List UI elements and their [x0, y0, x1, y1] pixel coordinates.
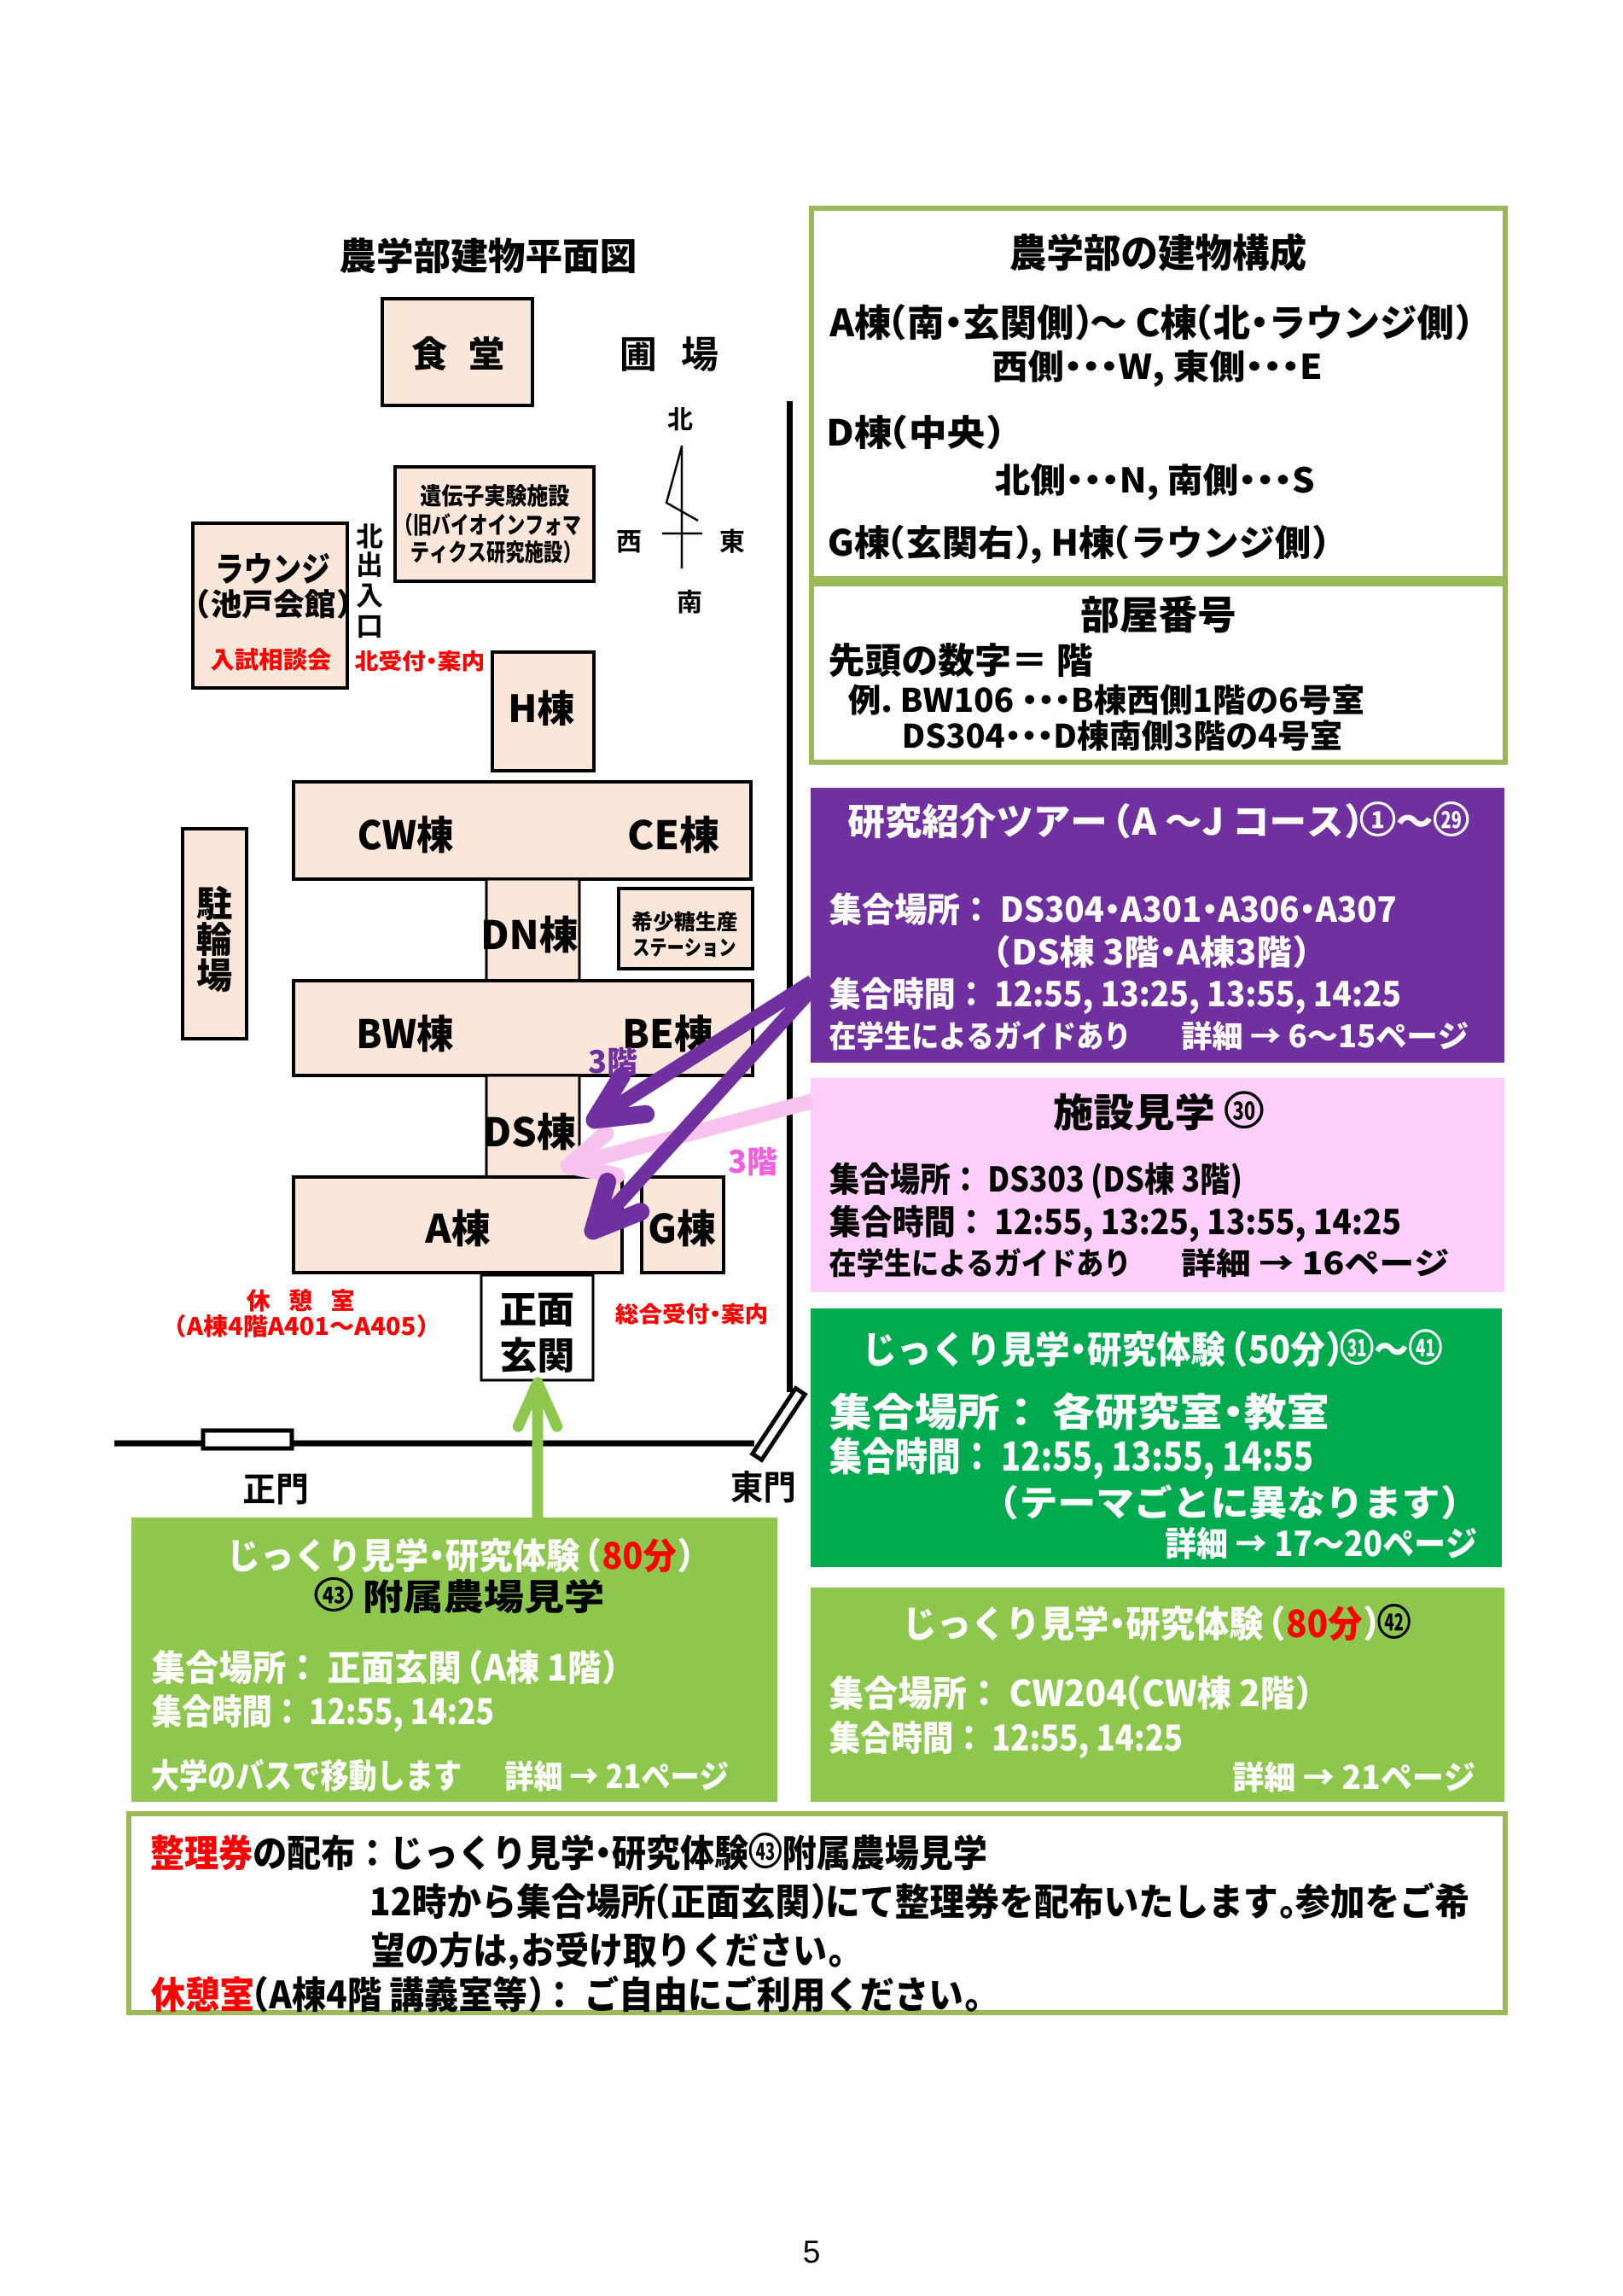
svg-text:5: 5 — [803, 2235, 821, 2270]
